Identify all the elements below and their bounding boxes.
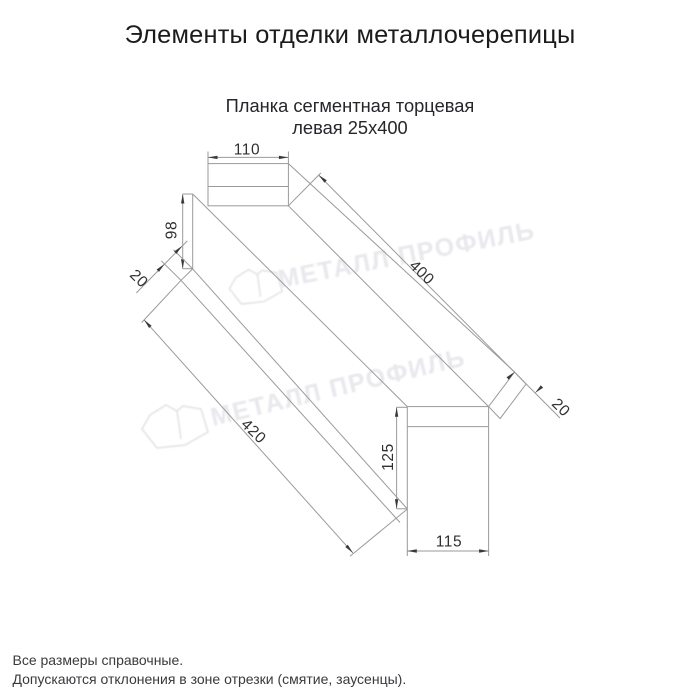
svg-text:МЕТАЛЛ ПРОФИЛЬ: МЕТАЛЛ ПРОФИЛЬ: [276, 217, 538, 294]
svg-text:110: 110: [234, 142, 261, 159]
svg-text:20: 20: [126, 266, 151, 291]
svg-text:125: 125: [380, 443, 397, 471]
svg-text:20: 20: [548, 395, 573, 420]
svg-text:115: 115: [436, 534, 463, 551]
svg-text:98: 98: [164, 221, 181, 239]
